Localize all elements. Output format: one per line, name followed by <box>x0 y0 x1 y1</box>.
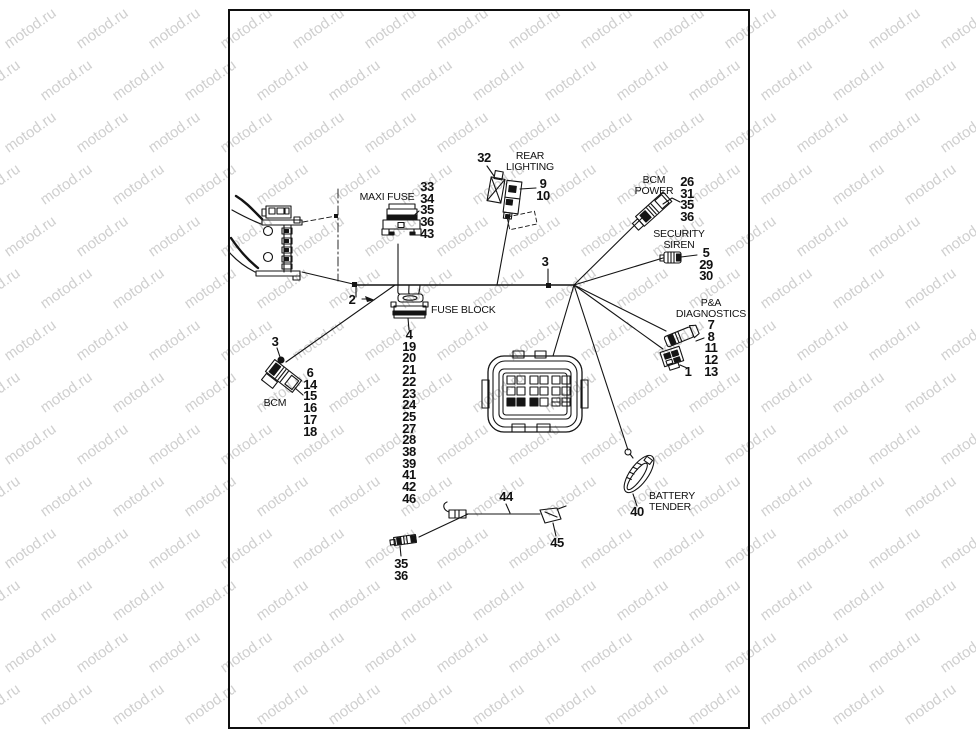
callout-44: 44 <box>495 491 517 503</box>
bottom-cable-callout-list: 3536 <box>388 558 414 581</box>
bcm-label: BCM <box>255 398 295 409</box>
maxi-fuse-callout-list-item: 43 <box>414 228 440 240</box>
security-siren-callout-list-item: 30 <box>693 270 719 282</box>
rear-lighting-callout-list: 910 <box>530 178 556 201</box>
callout-3-mid: 3 <box>534 256 556 268</box>
fuse-block-callout-list: 41920212223242527283839414246 <box>396 329 422 505</box>
bcm-callout-list-item: 18 <box>297 426 323 438</box>
pa-diagnostics-callout-list: 78111213 <box>698 319 724 378</box>
callout-labels-layer: MAXI FUSE FUSE BLOCK REAR LIGHTING BCM P… <box>0 0 976 732</box>
callout-32: 32 <box>473 152 495 164</box>
pa-diagnostics-callout-list-item: 13 <box>698 366 724 378</box>
parts-diagram-page: { "watermark": { "text": "motod.ru", "co… <box>0 0 976 732</box>
callout-1: 1 <box>677 366 699 378</box>
callout-40: 40 <box>626 506 648 518</box>
callout-2: 2 <box>341 294 363 306</box>
bottom-cable-callout-list-item: 36 <box>388 570 414 582</box>
rear-lighting-callout-list-item: 10 <box>530 190 556 202</box>
fuse-block-callout-list-item: 46 <box>396 493 422 505</box>
callout-45: 45 <box>546 537 568 549</box>
rear-lighting-label: REAR LIGHTING <box>490 151 570 173</box>
maxi-fuse-callout-list: 3334353643 <box>414 181 440 240</box>
bcm-callout-list: 61415161718 <box>297 367 323 437</box>
bcm-power-callout-list-item: 36 <box>674 211 700 223</box>
bcm-power-callout-list: 26313536 <box>674 176 700 223</box>
security-siren-callout-list: 52930 <box>693 247 719 282</box>
fuse-block-label: FUSE BLOCK <box>431 305 496 316</box>
callout-3-bcm: 3 <box>264 336 286 348</box>
battery-tender-label: BATTERY TENDER <box>649 491 695 513</box>
